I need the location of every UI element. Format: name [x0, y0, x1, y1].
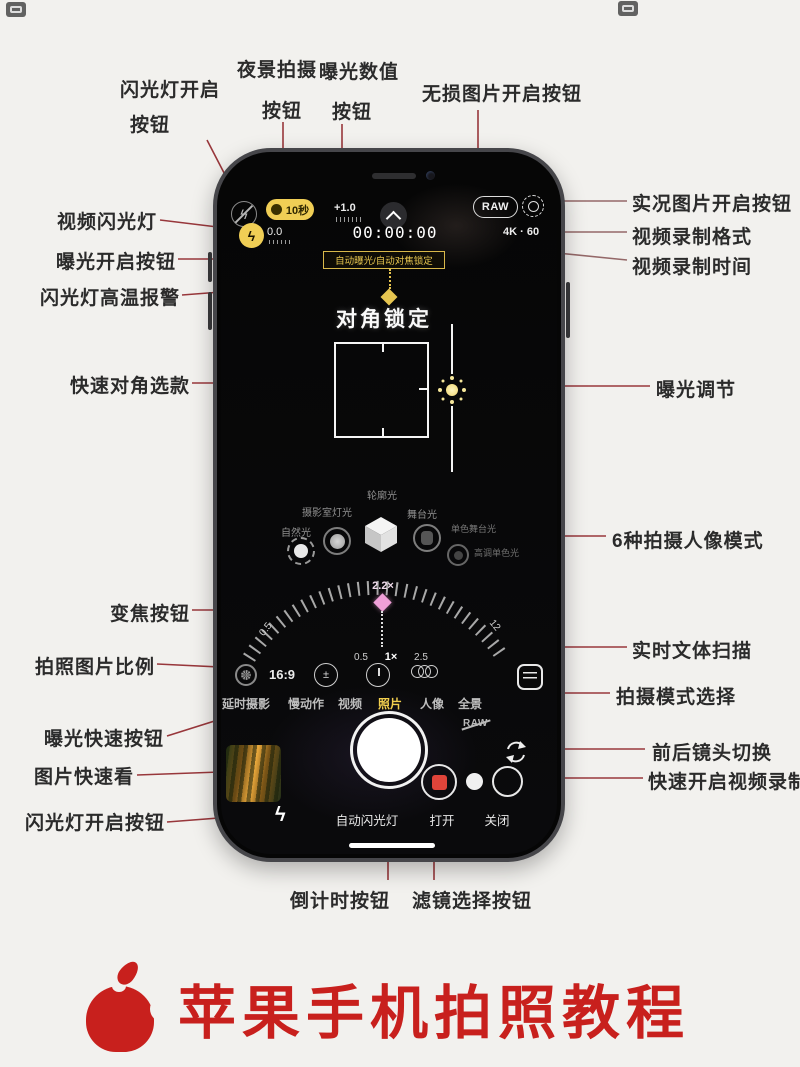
flash-off-option[interactable]: 关闭	[476, 810, 518, 829]
photo-thumbnail[interactable]	[226, 745, 281, 802]
studio-ball	[330, 534, 345, 549]
video-format-badge[interactable]: 4K · 60	[503, 226, 539, 238]
exposure-value-scale	[336, 217, 364, 222]
flash-bolt-icon[interactable]: ϟ	[275, 804, 286, 827]
camera-flip-icon[interactable]	[503, 739, 529, 765]
portrait-cube-icon[interactable]	[361, 514, 401, 554]
aspect-ratio-button[interactable]: 16:9	[269, 667, 295, 682]
focus-lock-label: 对角锁定	[321, 303, 447, 333]
annotation-exposure-value-line2: 按钮	[332, 97, 372, 124]
exposure-bias-scale	[269, 240, 293, 244]
focus-square[interactable]	[334, 342, 429, 438]
night-mode-duration: 10秒	[286, 202, 309, 218]
exposure-quick-icon[interactable]: ±	[314, 663, 338, 687]
segmented-circle-icon[interactable]	[235, 664, 257, 686]
camera-screen: ϟ 10秒 +1.0 RAW ϟ 0.0 00:00:00 4K · 60 自动…	[221, 156, 557, 854]
annotation-filter-button: 滤镜选择按钮	[412, 886, 532, 913]
corner-mark	[6, 2, 26, 17]
flash-on-option[interactable]: 打开	[421, 810, 463, 829]
annotation-photo-preview: 图片快速看	[12, 762, 134, 789]
quick-video-ring[interactable]	[492, 766, 523, 797]
zoom-marker-dots	[381, 611, 383, 647]
exposure-slider-track-top[interactable]	[451, 324, 453, 374]
flash-auto-option[interactable]: 自动闪光灯	[317, 810, 417, 829]
shutter-button[interactable]	[350, 711, 428, 789]
portrait-stage-icon[interactable]	[413, 524, 441, 552]
front-camera-dot	[426, 171, 435, 180]
live-text-scan-icon[interactable]	[517, 664, 543, 690]
annotation-zoom-button: 变焦按钮	[100, 599, 190, 626]
annotation-quick-diagonal: 快速对角选款	[62, 371, 190, 398]
annotation-aspect-ratio: 拍照图片比例	[30, 652, 155, 679]
focus-tick	[382, 344, 384, 352]
zoom-preset-low[interactable]: 0.5	[349, 652, 373, 663]
mode-photo[interactable]: 照片	[370, 695, 410, 712]
portrait-studio-label: 摄影室灯光	[302, 504, 352, 519]
portrait-studio-icon[interactable]	[323, 527, 351, 555]
annotation-night-line2: 按钮	[262, 96, 302, 123]
record-stop-button[interactable]	[421, 764, 457, 800]
raw-toggle-button[interactable]: RAW	[473, 196, 518, 218]
phone-power-button	[566, 282, 570, 338]
phone-mute-switch	[208, 252, 212, 282]
focus-tick	[419, 388, 427, 390]
annotation-exposure-open: 曝光开启按钮	[28, 247, 176, 274]
segment-ball	[241, 670, 251, 680]
annotation-timer-button: 倒计时按钮	[290, 886, 390, 913]
annotation-mode-select: 拍摄模式选择	[616, 682, 736, 709]
phone-volume-button	[208, 292, 212, 330]
lock-connector-dots	[389, 269, 391, 289]
raw-off-icon[interactable]: RAW	[463, 718, 557, 729]
annotation-quick-video: 快速开启视频录制	[648, 767, 800, 794]
annotation-flash-open-top-line2: 按钮	[130, 110, 170, 137]
annotation-exposure-adjust: 曝光调节	[656, 375, 736, 402]
flash-on-icon[interactable]: ϟ	[239, 223, 264, 248]
moon-icon	[271, 204, 282, 215]
mode-video[interactable]: 视频	[330, 695, 370, 712]
iphone-mockup: ϟ 10秒 +1.0 RAW ϟ 0.0 00:00:00 4K · 60 自动…	[213, 148, 565, 862]
filter-icon[interactable]	[411, 665, 439, 679]
tutorial-infographic: 闪光灯开启 按钮 夜景拍摄 按钮 曝光数值 按钮 无损图片开启按钮 视频闪光灯 …	[0, 0, 800, 1067]
zoom-preset-mid[interactable]: 1×	[379, 651, 403, 663]
annotation-live-photo: 实况图片开启按钮	[632, 189, 792, 216]
annotation-exposure-quick: 曝光快速按钮	[22, 724, 164, 751]
earpiece-speaker	[372, 173, 416, 179]
home-indicator[interactable]	[349, 843, 435, 848]
page-title: 苹果手机拍照教程	[178, 966, 690, 1050]
annotation-flash-open-bottom: 闪光灯开启按钮	[0, 808, 165, 835]
apple-logo	[80, 960, 172, 1056]
zoom-current-value: 2.2×	[363, 580, 403, 592]
annotation-lossless: 无损图片开启按钮	[422, 79, 582, 106]
annotation-portrait-modes: 6种拍摄人像模式	[612, 526, 764, 553]
corner-mark	[618, 1, 638, 16]
annotation-live-text: 实时文体扫描	[632, 636, 752, 663]
portrait-contour-label: 轮廓光	[352, 487, 412, 502]
mode-portrait[interactable]: 人像	[412, 695, 452, 712]
exposure-sun-icon[interactable]	[439, 377, 465, 403]
portrait-stage-mono-label: 单色舞台光	[451, 522, 496, 535]
stage-bust	[421, 531, 433, 545]
annotation-video-flash: 视频闪光灯	[35, 207, 157, 234]
exposure-bias-value[interactable]: 0.0	[267, 226, 282, 238]
annotation-flash-overheat: 闪光灯高温报警	[8, 283, 180, 310]
timer-icon[interactable]	[366, 663, 390, 687]
portrait-stage-label: 舞台光	[407, 506, 437, 521]
white-dot-indicator	[466, 773, 483, 790]
zoom-preset-high[interactable]: 2.5	[409, 652, 433, 663]
live-photo-icon[interactable]	[522, 195, 544, 217]
annotation-night-line1: 夜景拍摄	[237, 55, 317, 82]
mode-pano[interactable]: 全景	[450, 695, 490, 712]
annotation-video-time: 视频录制时间	[632, 252, 752, 279]
annotation-exposure-value-line1: 曝光数值	[319, 57, 399, 84]
annotation-video-format: 视频录制格式	[632, 222, 752, 249]
ae-af-lock-banner: 自动曝光/自动对焦锁定	[323, 251, 445, 269]
night-mode-button[interactable]: 10秒	[266, 199, 314, 220]
annotation-flash-open-top-line1: 闪光灯开启	[120, 75, 220, 102]
exposure-slider-track-bottom[interactable]	[451, 406, 453, 472]
focus-tick	[382, 428, 384, 436]
mode-slomo[interactable]: 慢动作	[276, 695, 336, 712]
record-timer: 00:00:00	[345, 223, 445, 242]
exposure-value[interactable]: +1.0	[334, 202, 356, 214]
annotation-camera-flip: 前后镜头切换	[652, 738, 772, 765]
